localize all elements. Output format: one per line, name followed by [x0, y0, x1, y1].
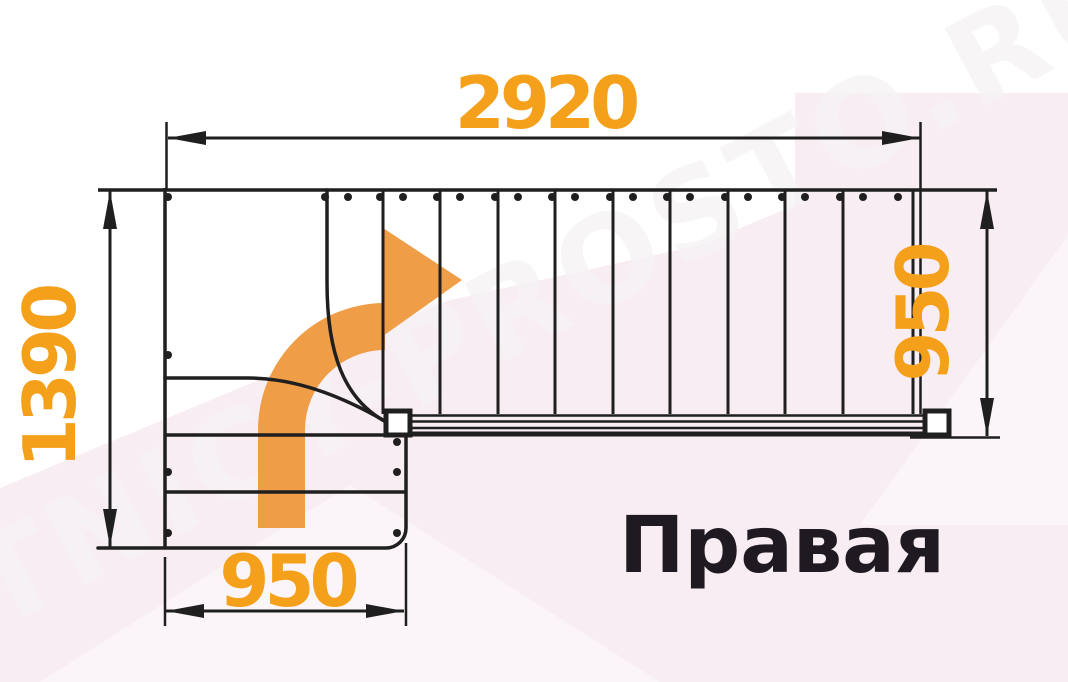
baluster-dot: [548, 193, 556, 201]
baluster-dot: [164, 193, 172, 201]
baluster-dot: [721, 193, 729, 201]
stair-plan-svg: LESTNICY-PROSTO.RULESTNICY-PROSTO.RU 292…: [0, 0, 1068, 682]
newel-post: [386, 411, 410, 435]
dimension-label-bottom: 950: [219, 539, 356, 623]
baluster-dot: [456, 193, 464, 201]
newel-post: [925, 411, 949, 435]
staircase-plan-diagram: LESTNICY-PROSTO.RULESTNICY-PROSTO.RU 292…: [0, 0, 1068, 682]
baluster-dot: [514, 193, 522, 201]
dimension-label-left: 1390: [8, 286, 92, 468]
baluster-dot: [801, 193, 809, 201]
baluster-dot: [571, 193, 579, 201]
baluster-dot: [164, 351, 172, 359]
baluster-dot: [164, 529, 172, 537]
baluster-dot: [321, 193, 329, 201]
background-shapes: [0, 93, 1068, 682]
baluster-dot: [606, 193, 614, 201]
baluster-dot: [393, 529, 401, 537]
baluster-dot: [894, 193, 902, 201]
dimension-label-top: 2920: [455, 61, 637, 145]
baluster-dot: [859, 193, 867, 201]
baluster-dot: [164, 468, 172, 476]
baluster-dot: [399, 193, 407, 201]
baluster-dot: [344, 193, 352, 201]
baluster-dot: [629, 193, 637, 201]
baluster-dot: [491, 193, 499, 201]
baluster-dot: [836, 193, 844, 201]
pink-region: [0, 93, 1068, 682]
dimension-arrowhead: [168, 131, 206, 145]
baluster-dot: [778, 193, 786, 201]
baluster-dot: [393, 438, 401, 446]
dimension-label-right: 950: [881, 244, 965, 381]
dimension-arrowhead: [103, 191, 117, 229]
orientation-title: Правая: [619, 501, 945, 591]
baluster-dot: [663, 193, 671, 201]
baluster-dot: [433, 193, 441, 201]
baluster-dot: [393, 468, 401, 476]
baluster-dot: [744, 193, 752, 201]
baluster-dot: [686, 193, 694, 201]
baluster-dot: [376, 193, 384, 201]
